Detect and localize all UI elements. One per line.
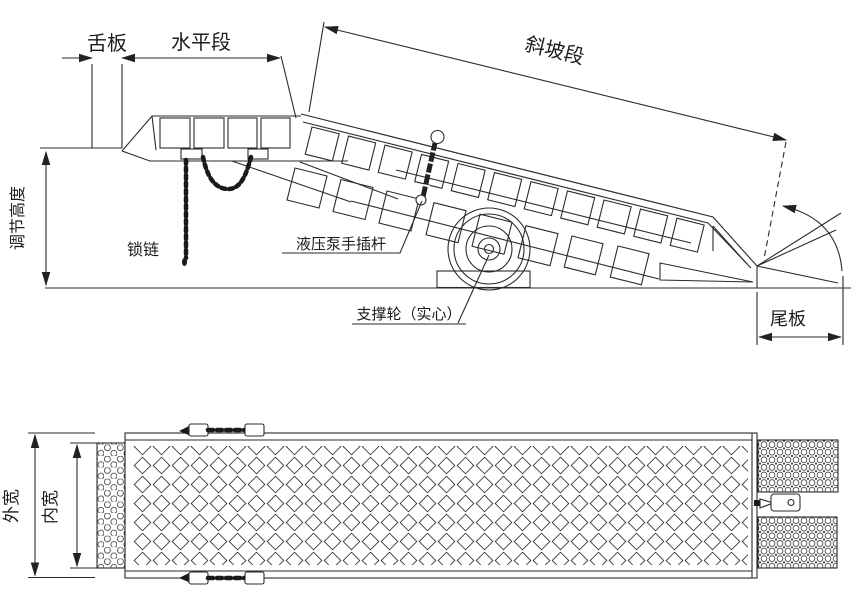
label-horizontal-section: 水平段 [171, 31, 231, 54]
label-inner-width: 内宽 [41, 490, 60, 524]
label-pump-rod: 液压泵手插杆 [296, 236, 386, 253]
label-outer-width: 外宽 [2, 489, 21, 523]
label-slope-section: 斜坡段 [523, 32, 587, 69]
technical-drawing: 舌板 水平段 斜坡段 调节高度 锁链 液压泵手插杆 支撑轮（实心） 尾板 [0, 0, 865, 594]
dim-top [62, 58, 280, 148]
label-tongue-plate: 舌板 [87, 32, 127, 55]
pump-hand-rod [416, 131, 444, 206]
label-lock-chain: 锁链 [127, 241, 159, 259]
lock-chain [181, 149, 268, 266]
support-wheel [448, 208, 530, 290]
horizontal-deck [122, 116, 348, 161]
plan-tail-plate-bottom [758, 517, 837, 568]
plan-latch [754, 494, 800, 511]
dim-inner-width [70, 443, 97, 568]
plan-view: 外宽 内宽 [2, 424, 838, 584]
side-view: 舌板 水平段 斜坡段 调节高度 锁链 液压泵手插杆 支撑轮（实心） 尾板 [9, 22, 851, 345]
drawing-page: 舌板 水平段 斜坡段 调节高度 锁链 液压泵手插杆 支撑轮（实心） 尾板 [0, 0, 865, 594]
label-tail-plate: 尾板 [770, 309, 806, 329]
label-adjust-height: 调节高度 [9, 186, 27, 250]
tail-plate-side [757, 142, 842, 283]
plan-tail-plate-top [758, 440, 838, 492]
dim-outer-width [28, 433, 95, 578]
slope-truss [232, 114, 757, 288]
plan-mesh-surface [133, 446, 748, 565]
plan-tongue-strip [97, 443, 125, 568]
label-support-wheel: 支撑轮（实心） [356, 306, 461, 323]
